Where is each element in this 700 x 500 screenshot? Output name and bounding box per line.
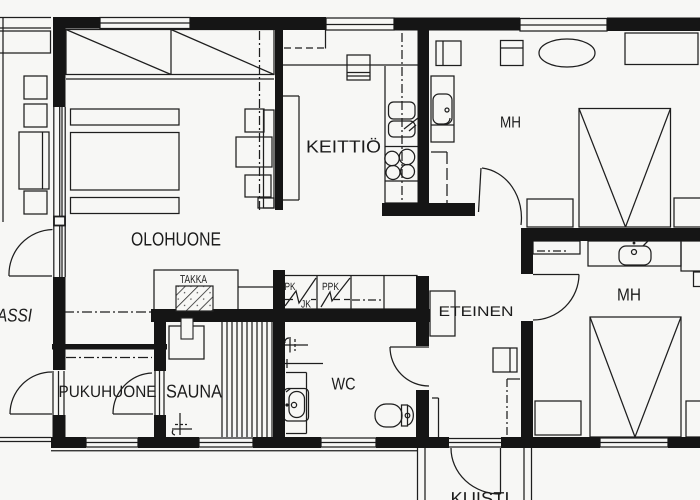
svg-text:OLOHUONE: OLOHUONE — [131, 230, 221, 251]
svg-text:PUKUHUONE: PUKUHUONE — [59, 383, 157, 401]
svg-text:ETEINEN: ETEINEN — [439, 303, 514, 319]
svg-text:WC: WC — [332, 375, 356, 394]
svg-text:MH: MH — [617, 285, 641, 305]
svg-text:TAKKA: TAKKA — [180, 274, 207, 286]
svg-text:PK: PK — [285, 281, 296, 293]
svg-text:JK: JK — [301, 299, 311, 311]
svg-text:KEITTIÖ: KEITTIÖ — [306, 137, 381, 157]
svg-text:MH: MH — [500, 115, 521, 132]
svg-text:PPK: PPK — [322, 281, 339, 293]
svg-text:SAUNA: SAUNA — [166, 381, 223, 402]
svg-text:KUISTI: KUISTI — [451, 489, 510, 500]
svg-text:ASSI: ASSI — [0, 305, 32, 326]
